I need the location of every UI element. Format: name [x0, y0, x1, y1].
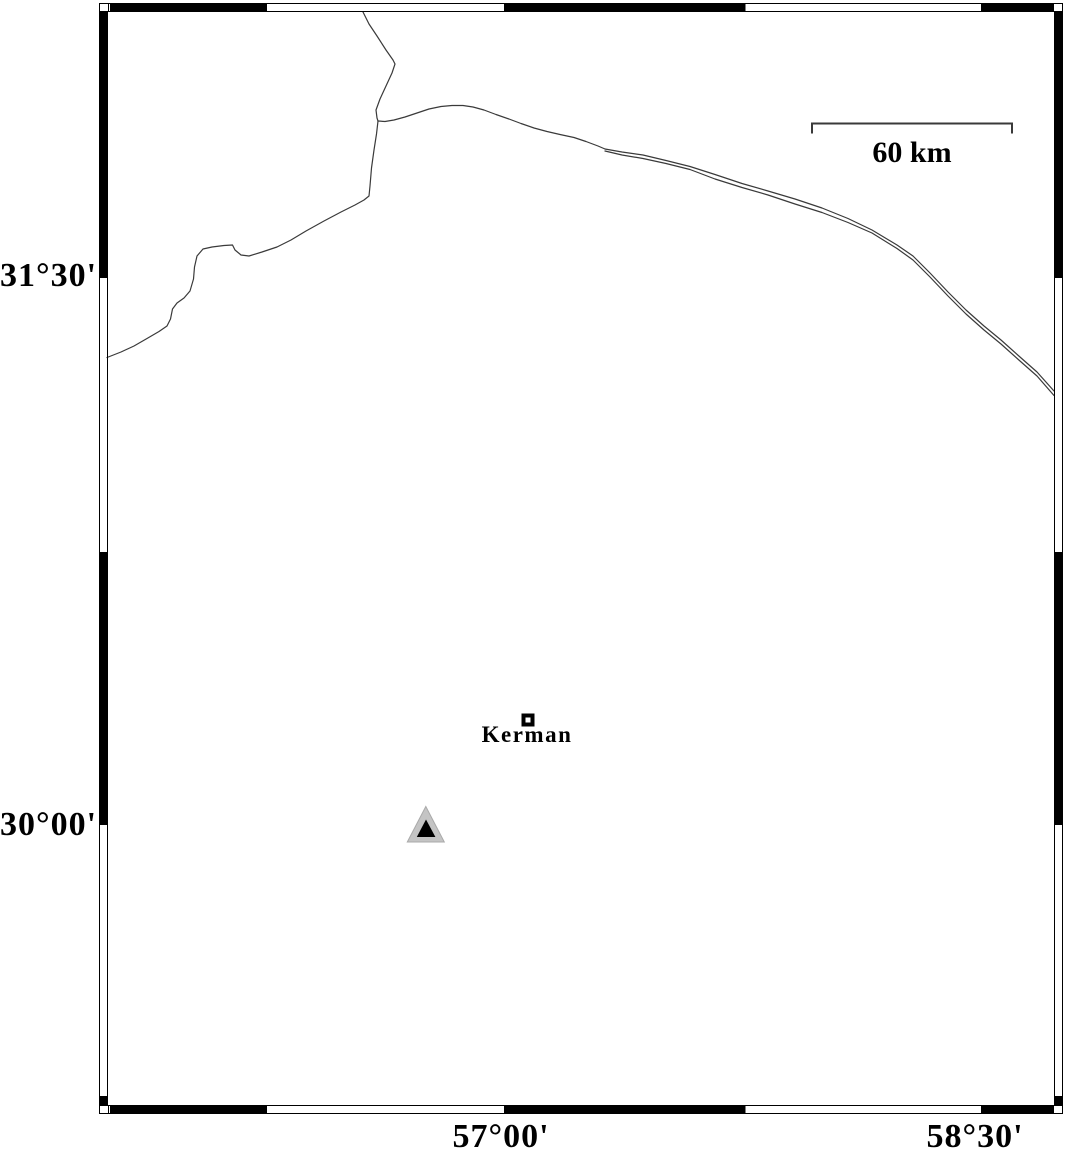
scale-bar [812, 124, 1012, 134]
city-label-kerman: Kerman [482, 723, 573, 746]
map-frame [100, 4, 1063, 1114]
border-line-mid [378, 106, 605, 150]
frame-bottom-segments [110, 1106, 1053, 1114]
border-line-north [363, 12, 395, 121]
frame-corner-squares [100, 4, 1063, 1114]
frame-outer-line [100, 4, 1063, 1114]
frame-right-segments [1055, 12, 1063, 1106]
map-figure: 31°30' 30°00' 57°00' 58°30' 60 km Kerman [0, 0, 1066, 1154]
map-canvas [0, 0, 1066, 1154]
frame-top-segments [110, 4, 1053, 12]
lat-tick-label-31-30: 31°30' [0, 259, 88, 293]
border-line-east-upper [605, 149, 1054, 391]
frame-left-segments [100, 12, 108, 1106]
lon-tick-label-57-00: 57°00' [452, 1120, 549, 1154]
border-line-southwest [107, 121, 378, 358]
map-lines [107, 12, 1054, 396]
lon-tick-label-58-30: 58°30' [926, 1120, 1023, 1154]
lat-tick-label-30-00: 30°00' [0, 808, 88, 842]
border-line-east-lower [605, 151, 1054, 396]
scale-bar-label: 60 km [872, 138, 951, 168]
frame-inner-line [108, 12, 1055, 1106]
